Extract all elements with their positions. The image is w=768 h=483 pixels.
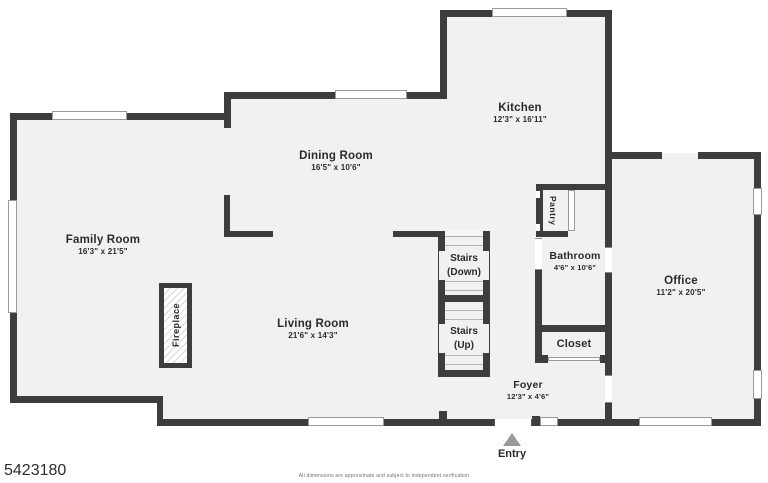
floor-family-room [10, 115, 230, 403]
door-entry-opening [494, 419, 532, 426]
wall-closet-bottom-left [535, 355, 548, 363]
wall-dining-family-connector [224, 92, 231, 128]
stairs-down-line1: Stairs [439, 252, 489, 266]
wall-family-bottom [10, 396, 163, 403]
floor-plan: Stairs (Down) Stairs (Up) Fireplace Pant… [0, 0, 768, 483]
wall-pantry-bottom [536, 231, 568, 237]
room-label-bathroom: Bathroom 4'6" x 10'6" [536, 250, 614, 273]
family-dims: 16'3" x 21'5" [43, 247, 163, 257]
room-label-family: Family Room 16'3" x 21'5" [43, 233, 163, 257]
room-label-dining: Dining Room 16'5" x 10'6" [276, 149, 396, 173]
wall-right-divider-lower [605, 403, 612, 426]
wall-office-top-left [605, 152, 662, 159]
wall-right-divider-upper [605, 159, 612, 247]
window-family-top [52, 111, 127, 120]
wall-stairs-bottom [438, 370, 490, 377]
foyer-dims: 12'3" x 4'6" [488, 392, 568, 401]
office-dims: 11'2" x 20'5" [621, 288, 741, 298]
bathroom-name: Bathroom [536, 250, 614, 263]
wall-stairs-divider [438, 295, 490, 302]
wall-foyer-jamb-stub [439, 411, 447, 419]
wall-office-right-upper [754, 152, 761, 188]
stairs-up-line1: Stairs [439, 325, 489, 339]
room-label-kitchen: Kitchen 12'3" x 16'11" [460, 101, 580, 125]
door-foyer-office [605, 375, 612, 403]
room-label-closet: Closet [539, 338, 609, 352]
wall-kitchen-right [605, 10, 612, 159]
wall-family-left-lower [10, 313, 17, 403]
pantry-label: Pantry [548, 196, 558, 225]
stairs-up-line2: (Up) [439, 339, 489, 353]
fireplace: Fireplace [159, 283, 192, 368]
entry-label: Entry [482, 448, 542, 460]
stairs-down-line2: (Down) [439, 266, 489, 280]
wall-bottom-foyer [558, 419, 606, 426]
wall-bathroom-closet-divider [535, 325, 612, 332]
dining-name: Dining Room [276, 149, 396, 163]
fireplace-label: Fireplace [171, 303, 181, 347]
wall-bathroom-left [535, 270, 542, 326]
room-label-office: Office 11'2" x 20'5" [621, 274, 741, 298]
pantry-jamb-notch-top [536, 191, 540, 198]
stairs-up-label: Stairs (Up) [439, 324, 489, 353]
window-office-right-lower [753, 370, 762, 399]
wall-right-divider-middle [605, 273, 612, 325]
closet-name: Closet [539, 338, 609, 352]
wall-dining-nook-horizontal [224, 231, 273, 237]
window-office-bottom [639, 417, 712, 426]
kitchen-dims: 12'3" x 16'11" [460, 115, 580, 125]
wall-office-right-middle [754, 215, 761, 370]
window-dining-top [335, 90, 407, 99]
kitchen-name: Kitchen [460, 101, 580, 115]
disclaimer-text: All dimensions are approximate and subje… [0, 473, 768, 479]
wall-dining-top-left [224, 92, 335, 99]
family-name: Family Room [43, 233, 163, 247]
living-dims: 21'6" x 14'3" [253, 331, 373, 341]
dining-dims: 16'5" x 10'6" [276, 163, 396, 173]
wall-kitchen-top-left [440, 10, 492, 17]
window-living-bottom [308, 417, 384, 426]
stairs-down-label: Stairs (Down) [439, 251, 489, 280]
wall-bottom-living-left [157, 419, 308, 426]
door-closet [548, 357, 600, 361]
foyer-name: Foyer [488, 379, 568, 392]
bathroom-dims: 4'6" x 10'6" [536, 263, 614, 272]
wall-office-right-lower [754, 399, 761, 426]
pantry-label-box: Pantry [546, 191, 560, 231]
living-name: Living Room [253, 317, 373, 331]
room-label-foyer: Foyer 12'3" x 4'6" [488, 379, 568, 402]
wall-bottom-living-right [384, 419, 494, 426]
window-family-left [8, 200, 17, 313]
entry-arrow-icon [503, 433, 521, 446]
window-office-right-upper [753, 188, 762, 215]
pantry-jamb-notch-bottom [536, 224, 540, 231]
office-name: Office [621, 274, 741, 288]
wall-office-top-right [698, 152, 761, 159]
window-kitchen-top [492, 8, 567, 17]
room-label-living: Living Room 21'6" x 14'3" [253, 317, 373, 341]
wall-family-left-upper [10, 113, 17, 200]
wall-dining-top-right [407, 92, 447, 99]
wall-kitchen-left [440, 10, 447, 98]
door-pantry [568, 190, 575, 231]
window-foyer-bottom [540, 417, 558, 426]
wall-entry-jamb-block [532, 416, 540, 426]
wall-family-top-right [127, 113, 224, 120]
